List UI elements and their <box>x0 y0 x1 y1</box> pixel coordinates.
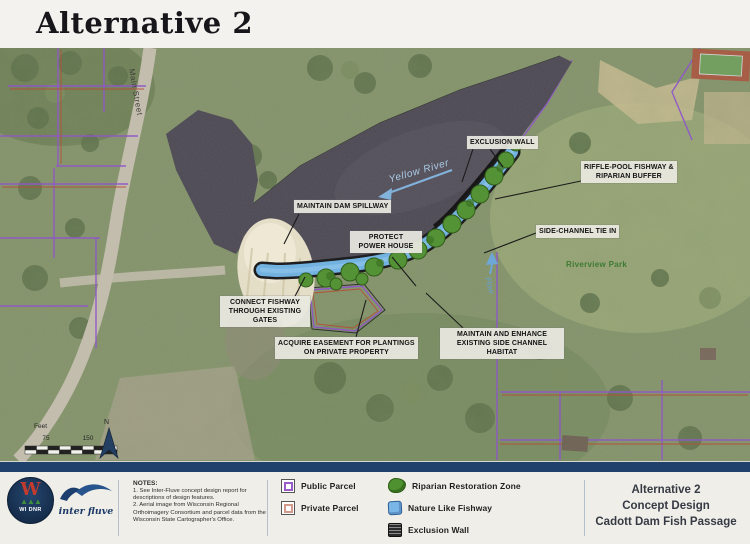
legend-riparian-zone: Riparian Restoration Zone <box>388 478 521 493</box>
dnr-w-icon: W <box>8 481 53 498</box>
nature-fishway-icon <box>388 501 403 516</box>
legend-exclusion-wall: Exclusion Wall <box>388 523 469 537</box>
separator-bar <box>0 461 750 472</box>
notes-block: NOTES: 1. See Inter-Fluve concept design… <box>133 480 267 524</box>
sheet-title-line: Concept Design <box>590 498 742 514</box>
title-band: Alternative 2 <box>0 0 750 48</box>
dnr-logo-text: WI DNR <box>8 507 53 513</box>
sheet-title-block: Alternative 2 Concept Design Cadott Dam … <box>590 482 742 530</box>
callout-maintain-dam-spillway: MAINTAIN DAM SPILLWAY <box>294 200 391 213</box>
callout-protect-power-house: PROTECT POWER HOUSE <box>350 231 422 253</box>
wi-dnr-logo: W ▲▲▲ WI DNR <box>7 477 54 524</box>
interfluve-logo: inter fluve <box>57 481 115 517</box>
footer-divider <box>584 480 585 536</box>
scanned-concept-plan-sheet: { "page_title": "Alternative 2", "map": … <box>0 0 750 544</box>
aerial-map: Feet 75 150 N Yellow River Flow Main Str… <box>0 48 750 461</box>
footer-divider <box>118 480 119 536</box>
page-title: Alternative 2 <box>0 0 750 40</box>
callout-maintain-enhance-habitat: MAINTAIN AND ENHANCE EXISTING SIDE CHANN… <box>440 328 564 359</box>
riverview-park-label: Riverview Park <box>566 260 627 269</box>
private-parcel-icon <box>281 501 295 515</box>
dnr-trees-icon: ▲▲▲ <box>8 498 53 505</box>
riparian-zone-icon <box>388 478 406 493</box>
aerial-map-graphic: Feet 75 150 N <box>0 48 750 461</box>
legend-private-parcel: Private Parcel <box>281 501 359 515</box>
interfluve-logo-text: inter fluve <box>57 506 115 517</box>
footer: W ▲▲▲ WI DNR inter fluve NOTES: 1. See I… <box>0 472 750 544</box>
notes-heading: NOTES: <box>133 480 267 487</box>
callout-side-channel-tie-in: SIDE-CHANNEL TIE IN <box>536 225 619 238</box>
legend-public-parcel: Public Parcel <box>281 479 356 493</box>
legend-nature-fishway: Nature Like Fishway <box>388 501 492 515</box>
footer-divider <box>267 480 268 536</box>
note-item: 2. Aerial image from Wisconsin Regional … <box>133 502 267 524</box>
callout-acquire-easement: ACQUIRE EASEMENT FOR PLANTINGS ON PRIVAT… <box>275 337 418 359</box>
callout-exclusion-wall: EXCLUSION WALL <box>467 136 538 149</box>
sheet-title-line: Alternative 2 <box>590 482 742 498</box>
sheet-title-line: Cadott Dam Fish Passage <box>590 514 742 530</box>
public-parcel-icon <box>281 479 295 493</box>
exclusion-wall-icon <box>388 523 402 537</box>
callout-connect-fishway: CONNECT FISHWAY THROUGH EXISTING GATES <box>220 296 310 327</box>
note-item: 1. See Inter-Fluve concept design report… <box>133 488 267 502</box>
callout-riffle-pool-fishway: RIFFLE-POOL FISHWAY & RIPARIAN BUFFER <box>581 161 677 183</box>
interfluve-wave-icon <box>58 481 114 503</box>
